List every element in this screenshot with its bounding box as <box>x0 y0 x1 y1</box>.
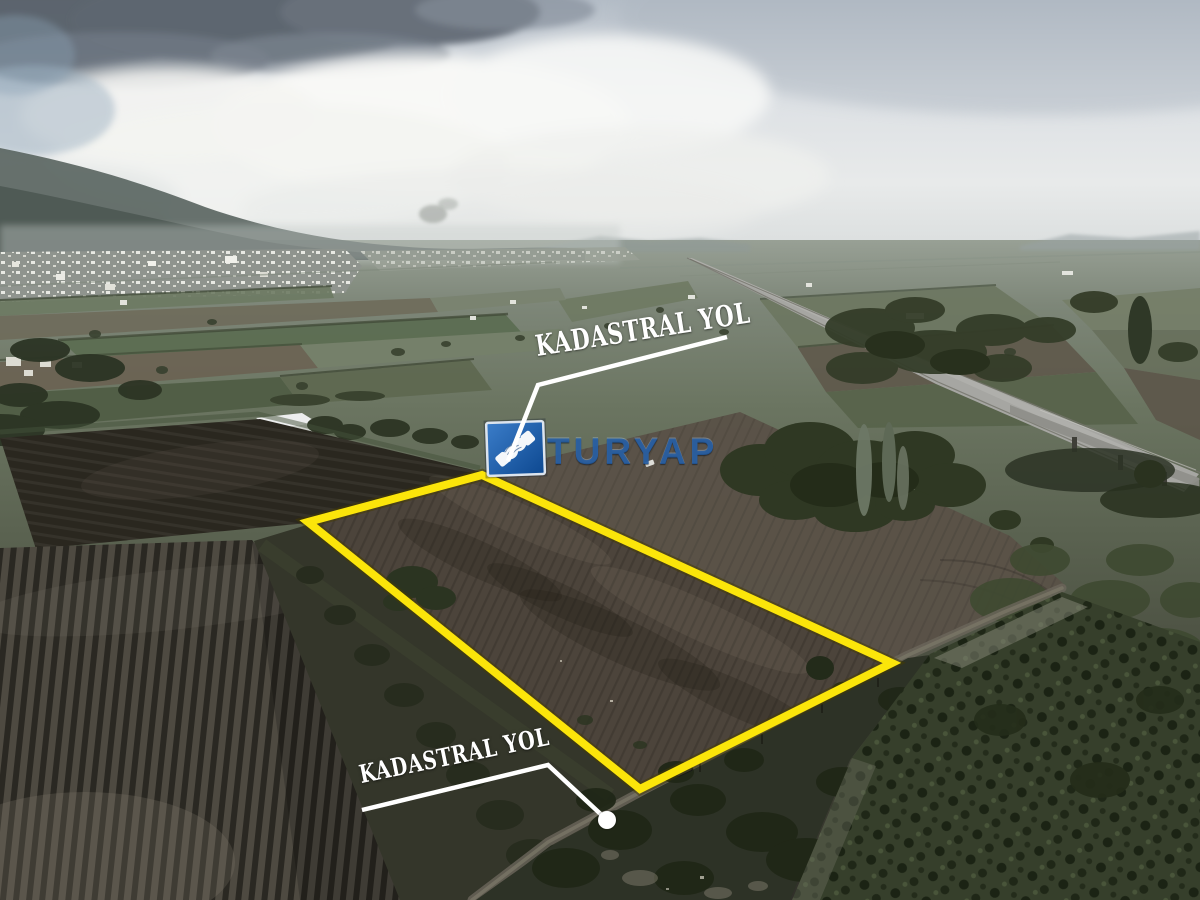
poplar-tree <box>882 422 896 502</box>
turyap-logo <box>485 419 547 477</box>
tall-tree <box>1128 296 1152 364</box>
turyap-brand-text: TURYAP <box>547 431 718 473</box>
poplar-tree <box>897 446 909 510</box>
endpoint-dot <box>598 811 616 829</box>
poplar-tree <box>856 424 872 516</box>
aerial-photo: KADASTRAL YOL KADASTRAL YOL TURYAP <box>0 0 1200 900</box>
